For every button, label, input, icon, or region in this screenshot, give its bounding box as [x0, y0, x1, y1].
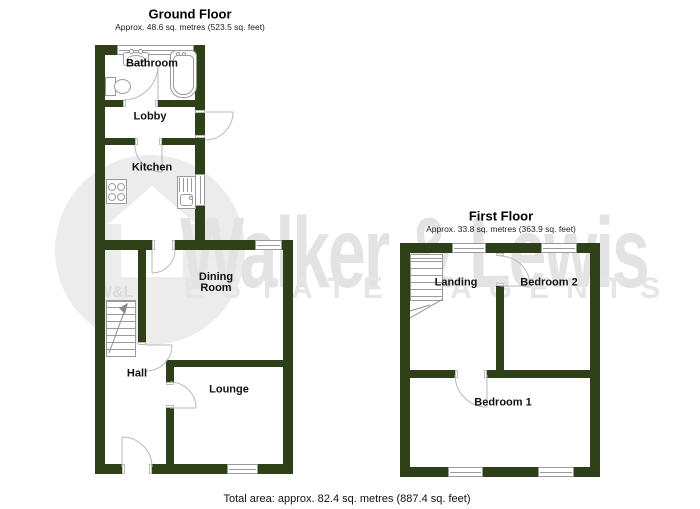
tap-icon	[129, 49, 134, 54]
wall-segment	[95, 45, 105, 474]
window	[255, 240, 282, 250]
door-jamb	[195, 110, 205, 113]
door-jamb	[496, 253, 504, 256]
hob-ring-icon	[108, 193, 116, 201]
wall-segment	[95, 464, 122, 474]
tap-icon	[182, 52, 186, 56]
door-jamb	[135, 138, 138, 145]
window	[538, 467, 574, 477]
wall-segment	[138, 250, 146, 345]
room-label-bedroom-2: Bedroom 2	[520, 278, 577, 289]
toilet	[114, 79, 131, 94]
door-jamb	[496, 283, 504, 286]
wall-segment	[166, 360, 174, 382]
wall-segment	[496, 286, 504, 370]
ground-floor-title: Ground Floor	[148, 7, 231, 22]
wall-segment	[400, 243, 410, 477]
room-label-hall: Hall	[127, 369, 147, 380]
staircase	[106, 300, 136, 357]
window	[227, 464, 258, 474]
room-label-bathroom: Bathroom	[126, 59, 178, 70]
room-label-kitchen: Kitchen	[132, 163, 172, 174]
door-arc-front-door	[122, 437, 152, 467]
first-floor-subtitle: Approx. 33.8 sq. metres (363.9 sq. feet)	[426, 224, 576, 234]
wall-segment	[105, 100, 123, 107]
wall-segment	[166, 408, 174, 464]
drainer	[179, 178, 194, 192]
room-label-dining-room: Dining Room	[192, 272, 240, 294]
room-label-landing: Landing	[435, 278, 478, 289]
room-label-lounge: Lounge	[209, 385, 249, 396]
door-jamb	[166, 382, 174, 385]
door-jamb	[172, 240, 175, 250]
door-jamb	[123, 100, 126, 107]
window	[448, 467, 483, 477]
window	[195, 174, 205, 206]
ground-floor-subtitle: Approx. 48.6 sq. metres (523.5 sq. feet)	[115, 22, 265, 32]
tap-icon	[176, 52, 180, 56]
door-jamb	[122, 464, 125, 474]
first-floor-title: First Floor	[469, 209, 533, 224]
door-jamb	[166, 405, 174, 408]
wall-segment	[158, 100, 195, 107]
room-label-lobby: Lobby	[134, 112, 167, 123]
wall-segment	[152, 464, 293, 474]
floorplan-page: { "colors": { "wall": "#2e4018" }, "grou…	[0, 0, 700, 509]
wall-segment	[95, 240, 152, 250]
wall-segment	[283, 240, 293, 474]
hob-ring-icon	[117, 183, 125, 191]
wall-segment	[162, 138, 195, 145]
door-jamb	[195, 135, 205, 138]
door-jamb	[455, 370, 458, 378]
window	[541, 243, 577, 253]
door-jamb	[149, 464, 152, 474]
hob-ring-icon	[108, 183, 116, 191]
wall-segment	[487, 370, 590, 378]
door-jamb	[155, 100, 158, 107]
door-jamb	[152, 240, 155, 250]
door-jamb	[484, 370, 487, 378]
wall-segment	[590, 243, 600, 477]
tap-icon	[189, 196, 193, 200]
door-jamb	[138, 342, 146, 345]
wall-segment	[410, 370, 455, 378]
door-arc-lobby-exterior	[205, 112, 233, 140]
wall-segment	[166, 360, 293, 367]
door-jamb	[159, 138, 162, 145]
wall-segment	[105, 138, 135, 145]
tap-icon	[138, 49, 143, 54]
hob-ring-icon	[117, 193, 125, 201]
room-label-bedroom-1: Bedroom 1	[474, 398, 531, 409]
total-area-text: Total area: approx. 82.4 sq. metres (887…	[223, 493, 470, 505]
window	[452, 243, 486, 253]
